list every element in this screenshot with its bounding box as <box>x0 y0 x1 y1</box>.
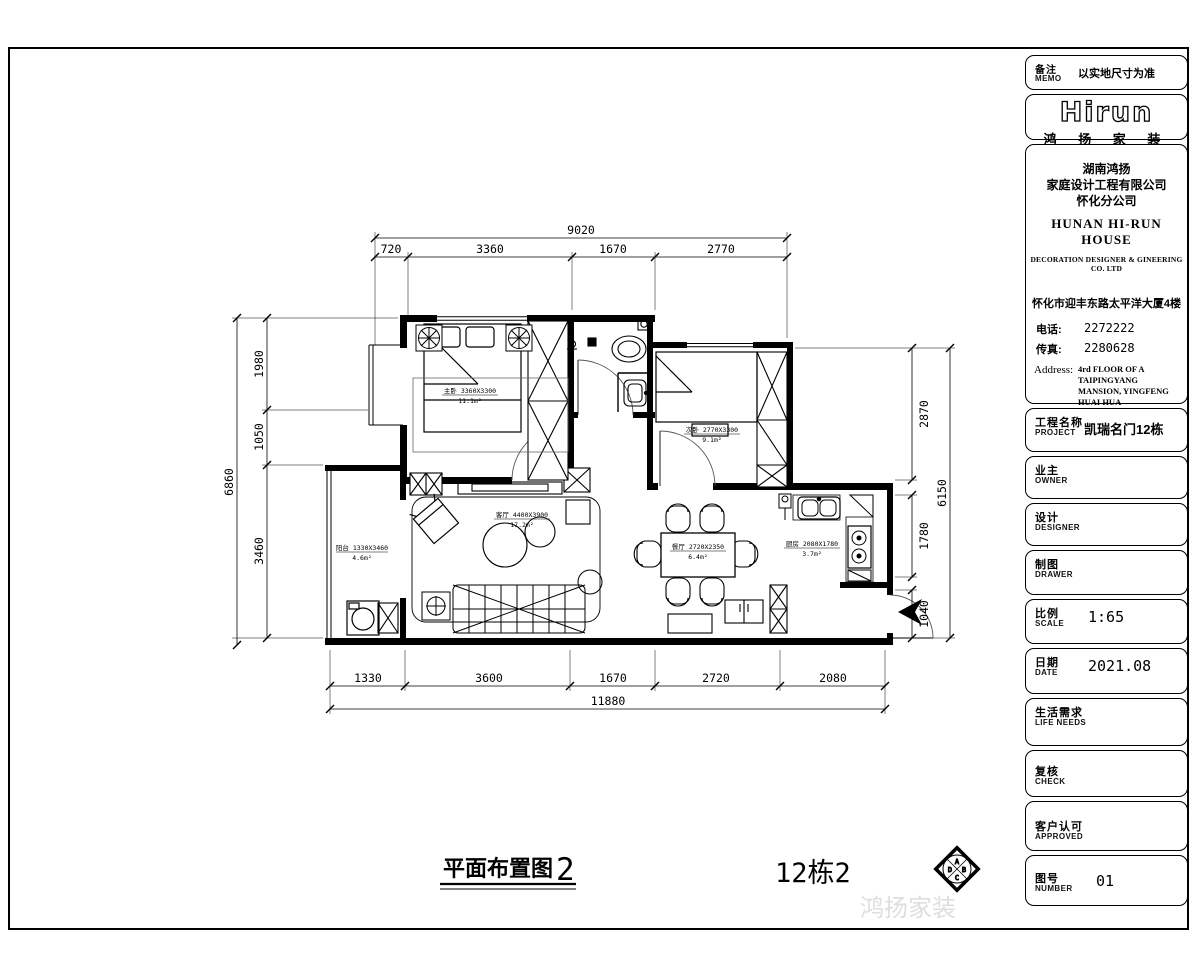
owner-label-en: OWNER <box>1035 476 1068 485</box>
company-name-cn-2: 家庭设计工程有限公司 <box>1026 177 1187 193</box>
wardrobe-bedroom2 <box>757 352 787 487</box>
phone-value: 2272222 <box>1084 321 1135 335</box>
side-table-square <box>566 500 590 524</box>
svg-text:3.7m²: 3.7m² <box>802 550 822 558</box>
svg-text:11880: 11880 <box>591 694 626 708</box>
project-label-en: PROJECT <box>1035 428 1076 437</box>
number-label-en: NUMBER <box>1035 884 1073 893</box>
svg-text:6860: 6860 <box>222 468 236 496</box>
memo-box: 备注 MEMO 以实地尺寸为准 <box>1025 55 1188 90</box>
svg-text:1040: 1040 <box>917 600 931 628</box>
svg-text:1330: 1330 <box>354 671 382 685</box>
svg-text:客厅 4400X3900: 客厅 4400X3900 <box>496 510 548 519</box>
company-name-en-2: DECORATION DESIGNER & GINEERING CO. LTD <box>1026 255 1187 273</box>
hirun-logo: Hirun <box>1026 97 1187 128</box>
svg-text:A: A <box>955 858 960 866</box>
plan-title: 平面布置图 2 12栋2 <box>440 852 851 889</box>
address-line-2: MANSION, YINGFENG <box>1078 386 1169 396</box>
svg-text:B: B <box>962 866 966 874</box>
svg-text:9.1m²: 9.1m² <box>702 436 722 444</box>
scale-label-en: SCALE <box>1035 619 1064 628</box>
svg-text:11.1m²: 11.1m² <box>458 397 481 405</box>
svg-text:2: 2 <box>556 852 575 888</box>
field-check: 复核 CHECK <box>1025 750 1188 797</box>
field-project: 工程名称 PROJECT 凯瑞名门12栋 <box>1025 408 1188 452</box>
company-box: 湖南鸿扬 家庭设计工程有限公司 怀化分公司 HUNAN HI-RUN HOUSE… <box>1025 144 1188 404</box>
date-label-en: DATE <box>1035 668 1058 677</box>
svg-text:C: C <box>955 874 959 882</box>
company-name-en-1: HUNAN HI-RUN HOUSE <box>1026 216 1187 248</box>
svg-text:2870: 2870 <box>917 400 931 428</box>
drawing-sheet: 9020 720 3360 1670 2770 6860 1980 1050 3… <box>0 0 1200 960</box>
compass-stamp-icon: A B C D <box>936 848 978 890</box>
svg-text:D: D <box>948 866 952 874</box>
floor-plan-canvas: 9020 720 3360 1670 2770 6860 1980 1050 3… <box>0 0 1020 960</box>
svg-text:2080: 2080 <box>819 671 847 685</box>
address-line-1: 4rd FLOOR OF A TAIPINGYANG <box>1078 364 1144 385</box>
svg-text:720: 720 <box>381 242 402 256</box>
fax-value: 2280628 <box>1084 341 1135 355</box>
floor-lamp-icon <box>422 592 450 620</box>
number-value: 01 <box>1096 872 1114 890</box>
address-line-3: HUAI HUA <box>1078 397 1121 407</box>
company-name-cn-3: 怀化分公司 <box>1026 193 1187 209</box>
svg-text:4.6m²: 4.6m² <box>352 554 372 562</box>
svg-text:阳台 1330X3460: 阳台 1330X3460 <box>336 543 388 552</box>
check-label-en: CHECK <box>1035 777 1065 786</box>
designer-label-en: DESIGNER <box>1035 523 1080 532</box>
company-address-cn: 怀化市迎丰东路太平洋大厦4楼 <box>1026 295 1187 311</box>
field-life-needs: 生活需求 LIFE NEEDS <box>1025 698 1188 746</box>
svg-text:3600: 3600 <box>475 671 503 685</box>
project-value: 凯瑞名门12栋 <box>1084 419 1163 438</box>
svg-text:1980: 1980 <box>252 350 266 378</box>
svg-text:次卧 2770X3300: 次卧 2770X3300 <box>686 425 738 434</box>
svg-text:9020: 9020 <box>567 223 595 237</box>
field-drawer: 制图 DRAWER <box>1025 550 1188 595</box>
memo-value: 以实地尺寸为准 <box>1078 65 1155 81</box>
fax-label: 传真: <box>1036 341 1062 357</box>
company-name-cn-1: 湖南鸿扬 <box>1026 161 1187 177</box>
svg-text:1670: 1670 <box>599 242 627 256</box>
address-value: 4rd FLOOR OF A TAIPINGYANG MANSION, YING… <box>1078 364 1183 408</box>
field-number: 图号 NUMBER 01 <box>1025 855 1188 906</box>
svg-text:2770: 2770 <box>707 242 735 256</box>
accent-chair <box>410 494 459 544</box>
svg-text:1780: 1780 <box>917 522 931 550</box>
field-approved: 客户认可 APPROVED <box>1025 801 1188 851</box>
kitchen-fixtures <box>779 494 873 582</box>
sofa <box>453 570 602 633</box>
approved-label-en: APPROVED <box>1035 832 1083 841</box>
svg-text:6150: 6150 <box>935 479 949 507</box>
svg-text:6.4m²: 6.4m² <box>688 553 708 561</box>
svg-text:17.2m²: 17.2m² <box>510 521 533 529</box>
watermark: 鸿扬家装 <box>860 894 956 922</box>
svg-text:1050: 1050 <box>252 423 266 451</box>
tv-console <box>458 482 562 494</box>
bathroom-fixtures <box>567 318 650 412</box>
svg-text:主卧 3360X3300: 主卧 3360X3300 <box>444 386 496 395</box>
phone-label: 电话: <box>1036 321 1062 337</box>
svg-text:厨房 2080X1780: 厨房 2080X1780 <box>786 539 838 548</box>
date-value: 2021.08 <box>1088 657 1151 675</box>
svg-text:餐厅 2720X2350: 餐厅 2720X2350 <box>672 542 724 551</box>
washing-machine <box>347 601 379 635</box>
svg-text:平面布置图: 平面布置图 <box>443 856 553 882</box>
field-scale: 比例 SCALE 1:65 <box>1025 599 1188 644</box>
life-needs-label-en: LIFE NEEDS <box>1035 718 1086 727</box>
bed-bedroom2 <box>656 352 757 436</box>
logo-box: Hirun 鸿 扬 家 装 <box>1025 94 1188 140</box>
scale-value: 1:65 <box>1088 608 1124 626</box>
drawer-label-en: DRAWER <box>1035 570 1073 579</box>
svg-text:3360: 3360 <box>476 242 504 256</box>
wardrobe-master <box>528 321 568 480</box>
block-number-label: 12栋2 <box>775 858 851 889</box>
field-owner: 业主 OWNER <box>1025 456 1188 499</box>
address-label: Address: <box>1034 364 1073 376</box>
svg-text:2720: 2720 <box>702 671 730 685</box>
memo-label-en: MEMO <box>1035 74 1062 83</box>
svg-text:1670: 1670 <box>599 671 627 685</box>
field-date: 日期 DATE 2021.08 <box>1025 648 1188 694</box>
svg-text:3460: 3460 <box>252 537 266 565</box>
field-designer: 设计 DESIGNER <box>1025 503 1188 546</box>
